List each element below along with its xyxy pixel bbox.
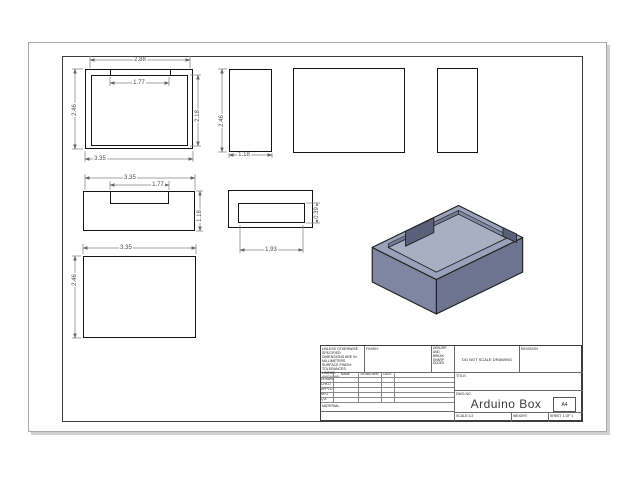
dimension-label: 2.46 [219, 114, 225, 128]
view-left-side-outline [229, 69, 272, 152]
dimension-label: 2.46 [72, 273, 78, 287]
view-right-side-outline [437, 68, 478, 153]
dimension-label: 1.18 [197, 209, 203, 223]
drawing-title: Arduino Box [461, 397, 551, 411]
deburr-cell: DEBURR AND BREAK SHARP EDGES [431, 346, 454, 373]
do-not-scale-cell: DO NOT SCALE DRAWING [454, 346, 519, 373]
dimension-label: 2.88 [133, 57, 147, 63]
table-line [394, 373, 395, 403]
scale-cell: SCALE:1:2 [454, 413, 511, 422]
revision-cell: REVISION [519, 346, 583, 373]
dimension-label: 3.35 [119, 245, 133, 251]
dimension-label: 2.18 [195, 109, 201, 123]
view-top-notch-tick-right [170, 69, 171, 76]
spec-note: DIMENSIONS ARE IN MILLIMETERS [322, 355, 363, 363]
finish-cell: FINISH: [364, 346, 431, 373]
blank-cell [321, 412, 454, 422]
view-back-outline [293, 68, 405, 153]
spec-note: UNLESS OTHERWISE SPECIFIED: [322, 347, 363, 355]
material-cell: MATERIAL: [321, 403, 454, 412]
dimension-label: 1.77 [151, 182, 165, 188]
dimension-label: 3.35 [123, 175, 137, 181]
dimension-label: 0.39 [314, 206, 320, 220]
sheet-cell: SHEET 1 OF 1 [548, 413, 583, 422]
table-line [333, 373, 334, 403]
dimension-label: 1.77 [132, 80, 146, 86]
table-line [358, 373, 359, 403]
view-top-notch-tick-left [110, 69, 111, 76]
drawing-canvas: 2.88 1.77 2.46 2.18 3.35 2.46 1.18 3.35 … [0, 0, 620, 480]
sheet-size-badge: A4 [553, 397, 576, 412]
view-front-notch [110, 191, 169, 204]
deburr-line: EDGES [433, 362, 453, 366]
dimension-label: 1.93 [264, 247, 278, 253]
weight-cell: WEIGHT: [511, 413, 548, 422]
dimension-label: 1.18 [237, 152, 251, 158]
view-bottom-outline [83, 256, 196, 338]
title-label-cell: TITLE: [454, 373, 583, 391]
isometric-view [350, 193, 535, 329]
table-line [381, 373, 382, 403]
title-block: UNLESS OTHERWISE SPECIFIED: DIMENSIONS A… [320, 345, 582, 421]
view-port-cutout [238, 203, 305, 223]
dimension-label: 3.35 [93, 156, 107, 162]
dimension-label: 2.46 [72, 103, 78, 117]
title-block-spec-notes: UNLESS OTHERWISE SPECIFIED: DIMENSIONS A… [321, 346, 364, 373]
